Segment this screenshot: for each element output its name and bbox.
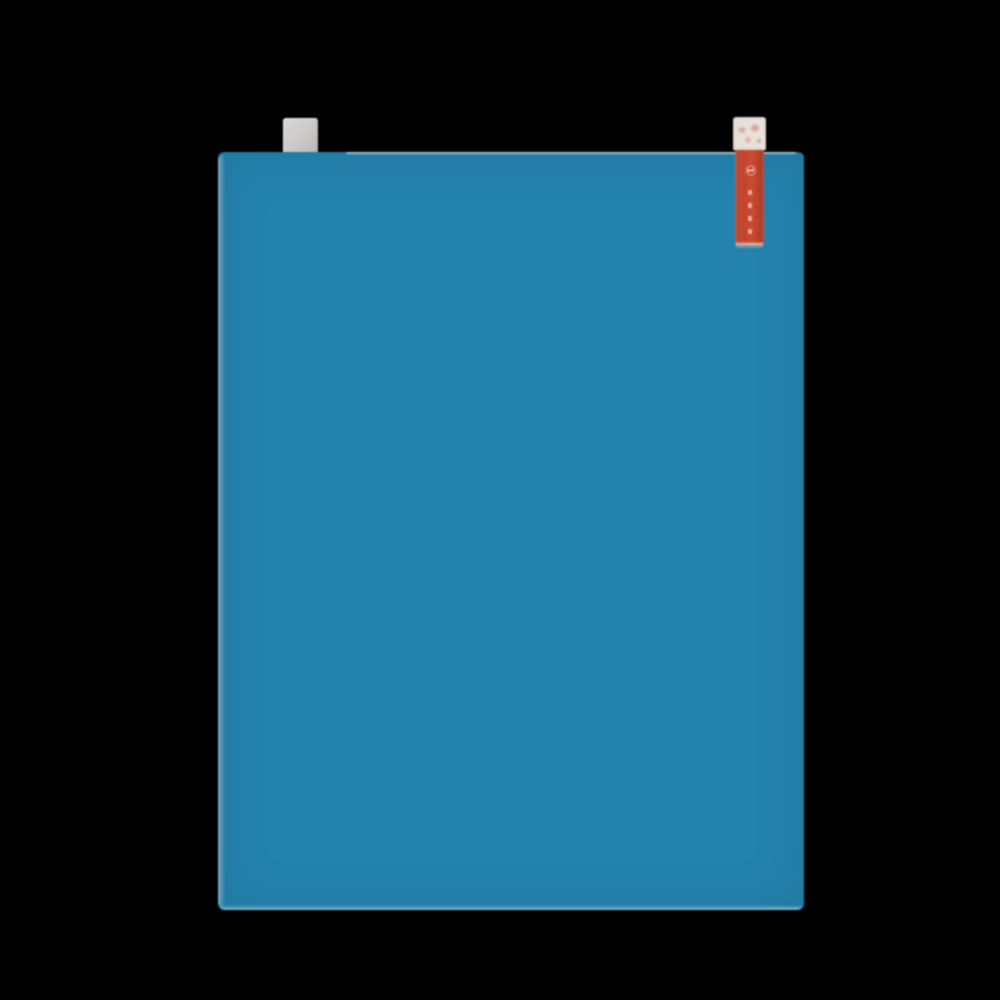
film-top-edge-highlight bbox=[346, 152, 796, 155]
fine-print-mark bbox=[748, 229, 752, 234]
screen-protector-product: ① bbox=[0, 0, 1000, 1000]
red-tab-fine-print-marks bbox=[747, 190, 752, 234]
gray-pull-tab bbox=[283, 118, 318, 156]
circled-step-icon: ① bbox=[743, 156, 756, 185]
fine-print-mark bbox=[748, 216, 752, 221]
film-left-edge-highlight bbox=[218, 155, 225, 907]
fine-print-mark bbox=[748, 203, 752, 208]
photo-background: ① bbox=[0, 0, 1000, 1000]
protector-film-sheet bbox=[218, 152, 804, 910]
red-tab-backing-paper bbox=[733, 117, 766, 150]
red-tab-tip-fade bbox=[736, 243, 763, 249]
red-pull-tab-sticker: ① bbox=[733, 117, 766, 238]
red-tab-body: ① bbox=[735, 150, 764, 245]
fine-print-mark bbox=[748, 190, 752, 195]
film-bottom-edge-highlight bbox=[220, 905, 802, 910]
